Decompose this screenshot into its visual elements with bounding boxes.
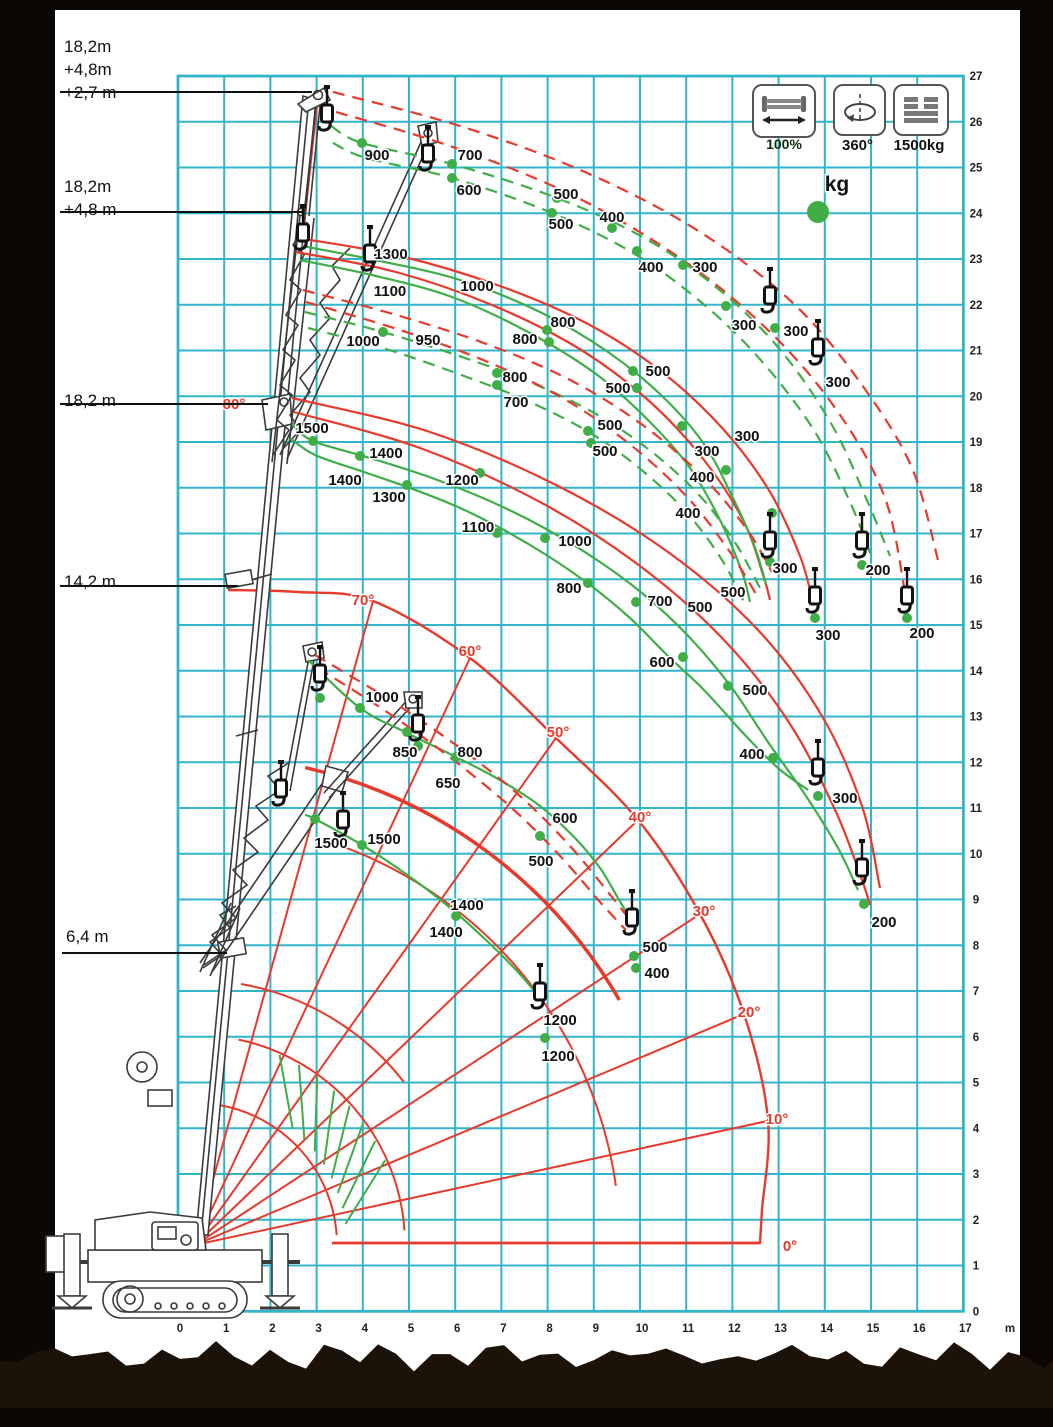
- load-value-label: 300: [772, 560, 797, 577]
- load-value-label: 1200: [543, 1012, 576, 1029]
- load-value-label: 500: [642, 939, 667, 956]
- capacity-point-marker: [631, 597, 641, 607]
- capacity-point-marker: [810, 613, 820, 623]
- capacity-point-marker: [678, 652, 688, 662]
- load-value-label: 500: [687, 599, 712, 616]
- load-value-label: 1500: [295, 420, 328, 437]
- hatch-line: [346, 1160, 385, 1223]
- capacity-point-marker: [355, 451, 365, 461]
- x-axis-unit-label: m: [1005, 1323, 1015, 1335]
- x-axis-tick-label: 2: [269, 1323, 275, 1335]
- y-axis-tick-label: 18: [970, 483, 983, 495]
- load-value-label: 800: [556, 580, 581, 597]
- load-value-label: 300: [694, 443, 719, 460]
- hook-icon: [624, 889, 638, 934]
- y-axis-tick-label: 25: [970, 163, 983, 175]
- load-value-label: 1100: [374, 283, 407, 300]
- boom-angle-label: 20°: [738, 1004, 761, 1021]
- capacity-point-marker: [632, 383, 642, 393]
- value-labels: 9007006005005004004003003003003001300110…: [223, 147, 935, 1255]
- capacity-point-marker: [629, 951, 639, 961]
- y-axis-tick-label: 22: [970, 300, 983, 312]
- capacity-point-marker: [721, 465, 731, 475]
- boom-length-label: 14,2 m: [64, 572, 116, 591]
- capacity-point-marker: [355, 703, 365, 713]
- load-value-label: 1300: [374, 246, 407, 263]
- capacity-point-marker: [402, 727, 412, 737]
- capacity-point-marker: [583, 578, 593, 588]
- capacity-point-marker: [628, 366, 638, 376]
- load-value-label: 650: [435, 775, 460, 792]
- counterweight-label: 1500kg: [890, 137, 948, 154]
- rotation-360-icon: [841, 92, 879, 128]
- boom-angle-label: 50°: [547, 724, 570, 741]
- counterweight-icon: [901, 93, 941, 127]
- load-value-label: 300: [825, 374, 850, 391]
- capacity-point-marker: [631, 963, 641, 973]
- x-axis-tick-label: 16: [913, 1323, 926, 1335]
- y-axis-tick-label: 24: [970, 208, 983, 220]
- y-axis-tick-label: 8: [973, 940, 980, 952]
- y-axis-tick-label: 2: [973, 1215, 979, 1227]
- hook-icon: [899, 567, 913, 612]
- load-value-label: 500: [553, 186, 578, 203]
- hook-icon: [273, 760, 287, 805]
- x-axis-tick-label: 1: [223, 1323, 230, 1335]
- boom-angle-label: 60°: [459, 643, 482, 660]
- capacity-point-marker: [447, 159, 457, 169]
- y-axis-tick-label: 14: [970, 666, 983, 678]
- load-value-label: 500: [720, 584, 745, 601]
- boom-angle-label: 40°: [629, 809, 652, 826]
- load-value-label: 200: [865, 562, 890, 579]
- y-axis-tick-label: 7: [973, 986, 979, 998]
- load-value-label: 500: [548, 216, 573, 233]
- capacity-point-marker: [540, 1033, 550, 1043]
- x-axis-tick-label: 10: [636, 1323, 649, 1335]
- hook-icon: [532, 963, 546, 1008]
- capacity-point-marker: [310, 814, 320, 824]
- load-value-label: 400: [644, 965, 669, 982]
- boom-length-label: 6,4 m: [66, 927, 109, 946]
- load-value-label: 1000: [558, 533, 591, 550]
- x-axis-tick-label: 4: [362, 1323, 369, 1335]
- x-axis-tick-label: 17: [959, 1323, 972, 1335]
- y-axis-tick-label: 0: [973, 1306, 979, 1318]
- capacity-point-marker: [535, 831, 545, 841]
- capacity-point-marker: [902, 613, 912, 623]
- load-value-label: 950: [415, 332, 440, 349]
- kg-unit-label: kg: [825, 173, 850, 196]
- load-value-label: 800: [502, 369, 527, 386]
- crane-load-diagram: 9007006005005004004003003003003001300110…: [0, 0, 1053, 1427]
- capacity-point-marker: [723, 681, 733, 691]
- load-value-label: 400: [739, 746, 764, 763]
- kg-legend-dot: [807, 201, 829, 223]
- boom-angle-label: 30°: [693, 903, 716, 920]
- load-value-label: 1100: [462, 519, 495, 536]
- x-axis-tick-label: 0: [177, 1323, 183, 1335]
- hook-icon: [810, 739, 824, 784]
- red-solid-capacity-curve: [292, 398, 880, 888]
- outrigger-icon: [760, 92, 808, 130]
- bottom-black-strip: [0, 1408, 1053, 1427]
- capacity-point-marker: [540, 533, 550, 543]
- torn-paper-band: [0, 1341, 1053, 1427]
- load-value-label: 800: [550, 314, 575, 331]
- capacity-point-marker: [813, 791, 823, 801]
- hook-icon: [854, 839, 868, 884]
- load-chart-page: 9007006005005004004003003003003001300110…: [0, 0, 1053, 1427]
- load-value-label: 500: [597, 417, 622, 434]
- x-axis-tick-label: 7: [500, 1323, 506, 1335]
- load-value-label: 800: [512, 331, 537, 348]
- load-value-label: 1000: [365, 689, 398, 706]
- capacity-point-marker: [583, 426, 593, 436]
- x-axis-tick-label: 11: [682, 1323, 695, 1335]
- capacity-point-marker: [768, 753, 778, 763]
- load-value-label: 600: [456, 182, 481, 199]
- load-value-label: 300: [815, 627, 840, 644]
- load-value-label: 1000: [460, 278, 493, 295]
- y-axis-tick-label: 26: [970, 117, 983, 129]
- load-value-label: 1400: [450, 897, 483, 914]
- y-axis-tick-label: 16: [970, 574, 983, 586]
- y-axis-tick-label: 1: [973, 1261, 980, 1273]
- boom-angle-ray: [195, 820, 638, 1245]
- load-value-label: 900: [364, 147, 389, 164]
- load-value-label: 600: [552, 810, 577, 827]
- capacity-point-marker: [357, 840, 367, 850]
- boom-angle-label: 10°: [766, 1111, 789, 1128]
- y-axis-tick-label: 20: [970, 391, 983, 403]
- y-axis-tick-label: 5: [973, 1078, 980, 1090]
- slewing-range-legend: [833, 84, 886, 136]
- y-axis-tick-label: 13: [970, 712, 983, 724]
- load-value-label: 500: [742, 682, 767, 699]
- x-axis-tick-label: 6: [454, 1323, 460, 1335]
- y-axis-tick-label: 9: [973, 895, 979, 907]
- x-axis-tick-label: 5: [408, 1323, 415, 1335]
- capacity-point-marker: [721, 301, 731, 311]
- load-value-label: 1400: [369, 445, 402, 462]
- load-value-label: 500: [528, 853, 553, 870]
- capacity-point-marker: [308, 436, 318, 446]
- load-value-label: 700: [647, 593, 672, 610]
- load-value-label: 300: [734, 428, 759, 445]
- load-value-label: 800: [457, 744, 482, 761]
- capacity-point-marker: [677, 421, 687, 431]
- load-value-label: 500: [592, 443, 617, 460]
- hook-icon: [762, 512, 776, 557]
- capacity-point-marker: [315, 693, 325, 703]
- load-value-label: 1000: [346, 333, 379, 350]
- capacity-point-marker: [859, 899, 869, 909]
- load-value-label: 700: [503, 394, 528, 411]
- x-axis-tick-label: 15: [867, 1323, 880, 1335]
- load-value-label: 200: [909, 625, 934, 642]
- load-value-label: 200: [871, 914, 896, 931]
- capacity-point-marker: [632, 246, 642, 256]
- load-value-label: 1400: [328, 472, 361, 489]
- load-value-label: 400: [675, 505, 700, 522]
- y-axis-tick-label: 19: [970, 437, 983, 449]
- load-value-label: 700: [457, 147, 482, 164]
- y-axis-tick-label: 12: [970, 757, 983, 769]
- capacity-point-marker: [544, 337, 554, 347]
- load-value-label: 300: [783, 323, 808, 340]
- y-axis-tick-label: 15: [970, 620, 983, 632]
- hook-icon: [854, 512, 868, 557]
- y-axis-tick-label: 3: [973, 1169, 979, 1181]
- boom-angle-label: 70°: [352, 592, 375, 609]
- x-axis-tick-label: 14: [820, 1323, 833, 1335]
- outrigger-percent-label: 100%: [766, 137, 802, 151]
- y-axis-tick-label: 17: [970, 529, 983, 541]
- load-value-label: 1300: [372, 489, 405, 506]
- y-axis-tick-label: 10: [970, 849, 983, 861]
- load-value-label: 1400: [429, 924, 462, 941]
- capacity-point-marker: [678, 260, 688, 270]
- load-value-label: 600: [649, 654, 674, 671]
- load-value-label: 1200: [445, 472, 478, 489]
- y-axis-tick-label: 4: [973, 1123, 980, 1135]
- hook-icon: [335, 791, 349, 836]
- hook-icon: [807, 567, 821, 612]
- x-axis-tick-label: 3: [315, 1323, 321, 1335]
- load-value-label: 400: [689, 469, 714, 486]
- x-axis-tick-label: 8: [546, 1323, 553, 1335]
- load-value-label: 300: [731, 317, 756, 334]
- y-axis-tick-label: 11: [970, 803, 983, 815]
- load-value-label: 500: [645, 363, 670, 380]
- hatch-line: [338, 1123, 363, 1193]
- y-axis-tick-label: 27: [970, 71, 983, 83]
- capacity-point-marker: [770, 323, 780, 333]
- boom-angle-label: 0°: [783, 1238, 797, 1255]
- x-axis-tick-label: 12: [728, 1323, 741, 1335]
- y-axis-tick-label: 6: [973, 1032, 979, 1044]
- load-value-label: 850: [392, 744, 417, 761]
- load-value-label: 400: [638, 259, 663, 276]
- load-value-label: 300: [692, 259, 717, 276]
- load-value-label: 1200: [541, 1048, 574, 1065]
- load-value-label: 1500: [314, 835, 347, 852]
- x-axis-tick-label: 13: [774, 1323, 787, 1335]
- outrigger-percent-badge: 100%: [737, 130, 831, 158]
- capacity-point-marker: [492, 380, 502, 390]
- boom-length-label: 18,2 m: [64, 391, 116, 410]
- counterweight-legend: [893, 84, 949, 136]
- y-axis-tick-label: 23: [970, 254, 983, 266]
- load-value-label: 500: [605, 380, 630, 397]
- y-axis-tick-label: 21: [970, 346, 983, 358]
- load-value-label: 300: [832, 790, 857, 807]
- load-value-label: 1500: [367, 831, 400, 848]
- capacity-point-marker: [492, 368, 502, 378]
- x-axis-tick-label: 9: [593, 1323, 599, 1335]
- load-value-label: 400: [599, 209, 624, 226]
- slewing-range-label: 360°: [833, 137, 882, 154]
